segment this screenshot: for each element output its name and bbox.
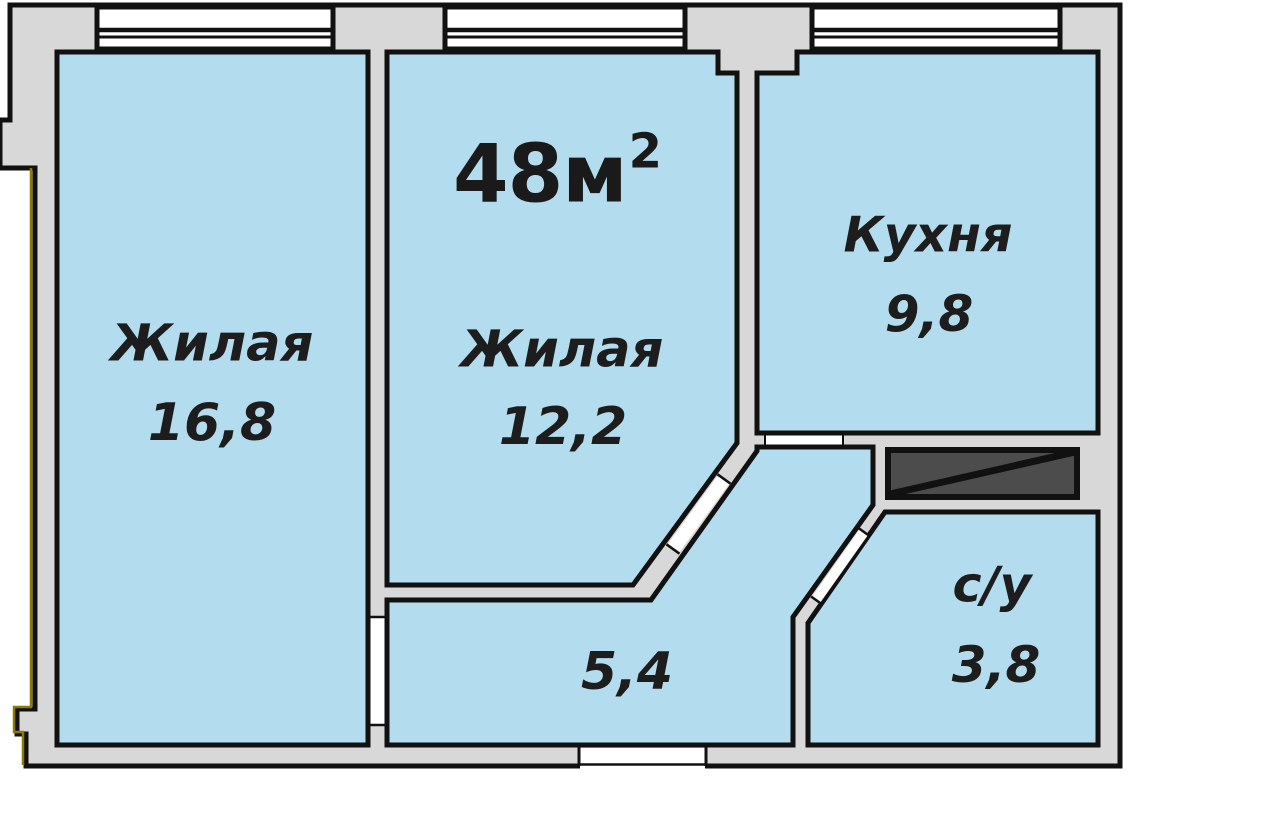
ventilation-shaft-icon	[888, 450, 1077, 497]
room-kitchen-area: 9,8	[885, 289, 974, 339]
door-opening	[371, 617, 385, 725]
door-living-1-hallway	[368, 617, 387, 725]
room-living-2-label: Жилая	[461, 325, 664, 376]
window-2	[445, 7, 685, 49]
left-facade-accent-line	[14, 168, 31, 765]
total-area-value: 48м	[453, 128, 627, 221]
room-living-2-area: 12,2	[499, 401, 627, 453]
floor-plan: 48м2 Жилая 16,8 Жилая 12,2 Кухня 9,8 с/у…	[0, 0, 1279, 828]
door-hallway-kitchen	[765, 435, 843, 446]
room-bathroom-label: с/у	[953, 561, 1032, 610]
room-living-1-area: 16,8	[148, 397, 276, 449]
room-hallway-area: 5,4	[581, 646, 673, 698]
door-opening	[580, 748, 705, 774]
room-living-1-label: Жилая	[111, 319, 314, 370]
total-area-title: 48м2	[453, 128, 661, 215]
room-kitchen-label: Кухня	[844, 211, 1013, 260]
window-3	[812, 7, 1060, 49]
room-bathroom-area: 3,8	[952, 640, 1041, 690]
entrance-door-opening	[578, 745, 707, 774]
total-area-superscript: 2	[629, 124, 661, 180]
window-1	[97, 7, 333, 49]
